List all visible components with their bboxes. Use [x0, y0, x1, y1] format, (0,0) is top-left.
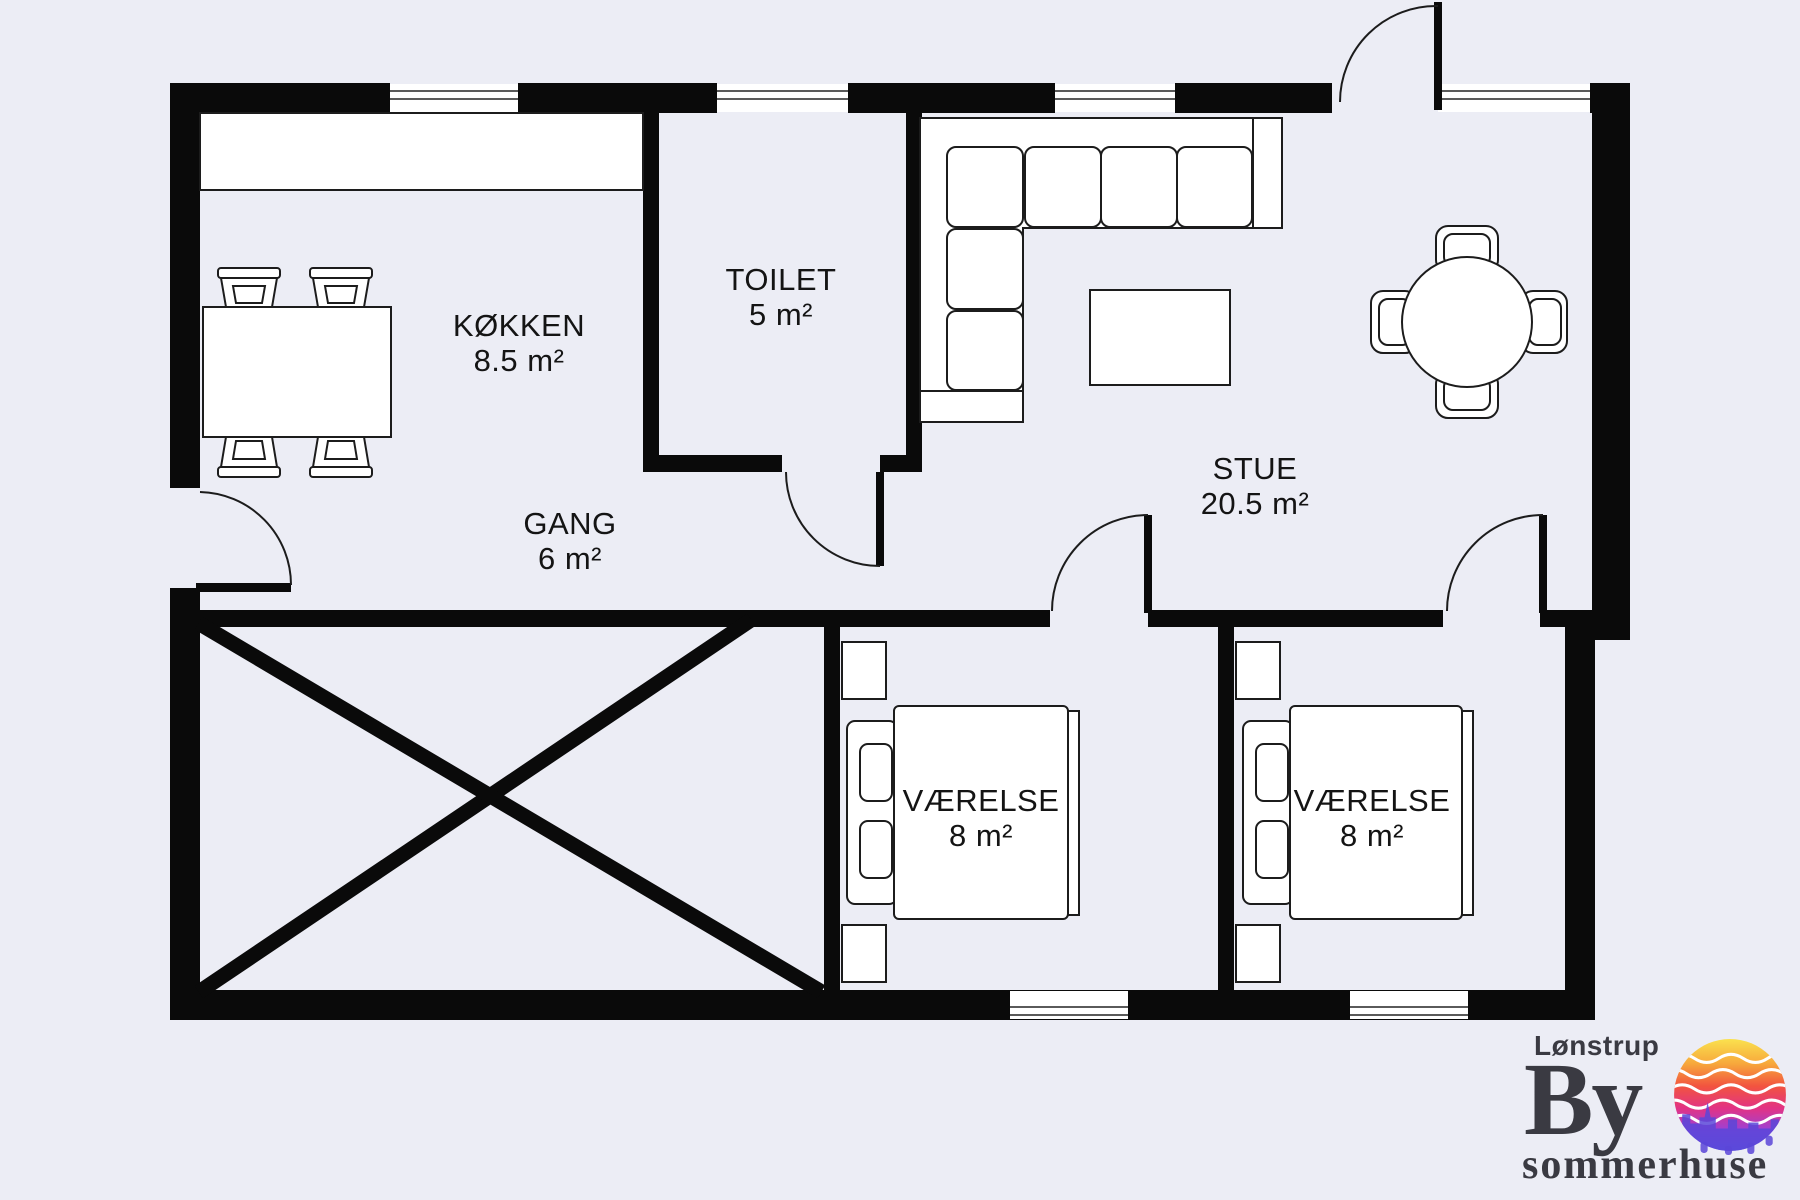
- room-label-vaerelse-2: VÆRELSE 8 m²: [1294, 783, 1451, 853]
- dining-chair: [310, 437, 372, 477]
- entry-door-left: [196, 492, 291, 592]
- hall-bedroom-wall-3: [1540, 610, 1600, 627]
- floor-plan: [0, 0, 1800, 1200]
- window: [1055, 84, 1175, 112]
- pillow: [860, 744, 892, 801]
- toilet-wall-bottom-stub: [880, 455, 922, 472]
- round-dining-table: [1402, 257, 1532, 387]
- brand-logo: Lønstrup By sommerhuse: [1520, 1028, 1794, 1192]
- window: [717, 84, 848, 112]
- pillow: [1256, 821, 1288, 878]
- sunset-sun-icon: [1670, 1036, 1790, 1156]
- wall-left-lower: [170, 588, 200, 1020]
- dining-chair: [218, 437, 280, 477]
- room-label-stue: STUE 20.5 m²: [1201, 451, 1310, 521]
- bedroom2-door: [1447, 515, 1547, 613]
- wall-left-upper: [170, 83, 200, 488]
- room-label-vaerelse-1: VÆRELSE 8 m²: [903, 783, 1060, 853]
- dining-table: [203, 307, 391, 437]
- room-label-gang: GANG 6 m²: [523, 506, 616, 576]
- room-label-kokken: KØKKEN 8.5 m²: [453, 308, 585, 378]
- wardrobe: [1236, 925, 1280, 982]
- bedroom1-door: [1052, 515, 1152, 613]
- wall-right-upper: [1592, 83, 1630, 640]
- floor-plan-page: KØKKEN 8.5 m² TOILET 5 m² GANG 6 m² STUE…: [0, 0, 1800, 1200]
- wall-top-3: [848, 83, 1055, 113]
- excluded-area-cross: [205, 624, 815, 988]
- window: [390, 84, 518, 112]
- toilet-wall-bottom: [643, 455, 782, 472]
- dining-table-group: [203, 268, 391, 477]
- pillow: [860, 821, 892, 878]
- wardrobe: [842, 642, 886, 699]
- toilet-door: [786, 472, 884, 566]
- crossed-area-wall-right: [824, 610, 840, 990]
- wall-top-4: [1175, 83, 1332, 113]
- wardrobe: [1236, 642, 1280, 699]
- pillow: [1256, 744, 1288, 801]
- logo-main-text: By: [1524, 1054, 1641, 1146]
- dining-chair: [218, 268, 280, 307]
- dining-chair: [310, 268, 372, 307]
- main-entrance-door-top: [1340, 2, 1442, 110]
- window: [1350, 991, 1468, 1019]
- wall-top-1: [170, 83, 390, 113]
- window: [1438, 84, 1590, 112]
- hall-bedroom-wall-2: [1148, 610, 1443, 627]
- kitchen-counter: [200, 113, 643, 190]
- window: [1010, 991, 1128, 1019]
- hall-bedroom-wall-1: [200, 610, 1050, 627]
- wall-top-2: [518, 83, 717, 113]
- toilet-wall-left: [643, 113, 659, 472]
- coffee-table: [1090, 290, 1230, 385]
- wardrobe: [842, 925, 886, 982]
- bedroom-divider-wall: [1218, 610, 1234, 990]
- wall-right-lower: [1565, 640, 1595, 992]
- round-table-group: [1371, 226, 1567, 418]
- room-label-toilet: TOILET 5 m²: [726, 262, 837, 332]
